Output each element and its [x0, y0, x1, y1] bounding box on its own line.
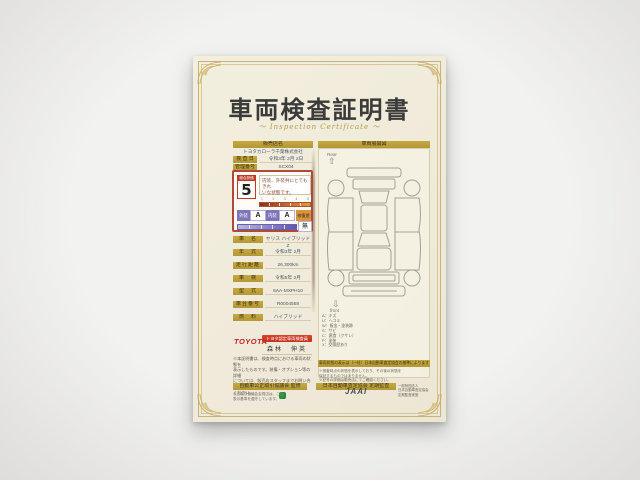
spec-row-fuel: 燃 料 ハイブリッド: [233, 314, 311, 321]
spec-row-mileage: 走行距離 26,300km: [233, 262, 311, 269]
corner-flourish-icon: [417, 59, 443, 85]
legend-line: X：交換歴あり: [322, 343, 422, 348]
mileage-value: 26,300km: [265, 262, 311, 269]
model-code-label: 型 式: [233, 288, 263, 295]
spec-row-shaken: 車 検 令和5年 2月: [233, 275, 311, 282]
disclaimer-line: 表示したものです。装備・オプション等の詳細: [233, 367, 313, 378]
shaken-label: 車 検: [233, 275, 263, 282]
chassis-number-value: R0004558: [265, 301, 311, 308]
fair-trade-council-bar: 自動車公正取引協議会 監修: [233, 383, 307, 390]
fuel-label: 燃 料: [233, 314, 263, 321]
overall-rating-box: 総合評価 5 内装、外装共にとてもきれ いな状態です。 1 2 3 4 5 外装…: [232, 170, 313, 232]
chassis-number-label: 車台番号: [233, 301, 263, 308]
inspector-name: 森林 伸英: [262, 344, 312, 355]
shaken-value: 令和5年 2月: [265, 275, 311, 282]
repair-history-label: 修復歴: [296, 210, 311, 221]
fair-trade-note: 公正取引協議会会員店は、この 表示基準を遵守しています。: [233, 392, 307, 401]
model-year-label: 年 式: [233, 249, 263, 256]
certificate-document: 車両検査証明書 〜 Inspection Certificate 〜 販売店名 …: [193, 56, 446, 422]
fair-trade-note-line: 表示基準を遵守しています。: [233, 397, 307, 402]
grade-scale-bar: [237, 224, 297, 230]
interior-grade: A: [279, 210, 295, 221]
car-name-value: ヤリス ハイブリッドZ: [265, 236, 311, 243]
overall-score-box: 総合評価 5: [237, 175, 256, 199]
spec-row-model-year: 年 式 令和3年 2月: [233, 249, 311, 256]
inspection-date-value: 令和3年 2月 2日: [259, 156, 313, 163]
jaai-note-line: 定期監査実施: [398, 393, 434, 397]
spec-row-car-name: 車 名 ヤリス ハイブリッドZ: [233, 236, 311, 243]
certified-inspector-bar: トヨタ認定車両検査員: [262, 335, 312, 342]
corner-flourish-icon: [196, 59, 222, 85]
rating-comment-box: 内装、外装共にとてもきれ いな状態です。: [259, 175, 311, 195]
rating-comment-line2: いな状態です。: [262, 190, 308, 196]
spec-row-chassis-number: 車台番号 R0004558: [233, 301, 311, 308]
certificate-subtitle-en: 〜 Inspection Certificate 〜: [193, 122, 446, 132]
model-year-value: 令和3年 2月: [265, 249, 311, 256]
photo-background: 車両検査証明書 〜 Inspection Certificate 〜 販売店名 …: [0, 0, 640, 480]
scale-tick: 2: [273, 197, 275, 201]
rating-comment-line1: 内装、外装共にとてもきれ: [262, 178, 308, 190]
diagram-legend: A：キズ U：ヘコミ W：板金・塗装跡 S：サビ C：腐食（クサレ） P：塗装 …: [322, 314, 422, 348]
meta-row-inspection-date: 検 査 日 令和3年 2月 2日: [233, 156, 313, 163]
grade-row: 外装 A 内装 A 修復歴: [237, 210, 312, 221]
rear-arrow-icon: ⇧: [328, 157, 336, 166]
diagram-header-bar: 車両展開図: [318, 141, 430, 148]
scale-tick: 3: [284, 197, 286, 201]
mileage-label: 走行距離: [233, 262, 263, 269]
model-code-value: 6AA-MXPH10: [265, 288, 311, 295]
exterior-label: 外装: [237, 210, 250, 221]
grade-scale-bar-wrap: [237, 224, 297, 230]
repair-history-value: 無: [298, 221, 312, 232]
exterior-grade: A: [250, 210, 266, 221]
scale-tick: 4: [296, 197, 298, 201]
standards-note-bar: 車両状態の表示は（一社）日本自動車査定協会の基準によります: [318, 360, 430, 367]
inspection-date-label: 検 査 日: [233, 156, 257, 163]
interior-label: 内装: [266, 210, 279, 221]
disclaimer-line: ※本証明書は、検査時点における車両の状態を: [233, 356, 313, 367]
scale-tick: 5: [307, 197, 309, 201]
rating-scale-bar: [259, 202, 311, 207]
vehicle-unfolded-diagram: [323, 166, 425, 300]
corner-flourish-icon: [196, 393, 222, 419]
jaai-logo: JAAI: [345, 387, 367, 396]
fair-trade-mark-icon: [279, 392, 286, 399]
dealer-name: トヨタカローラ千葉株式会社: [233, 149, 313, 155]
fuel-value: ハイブリッド: [265, 314, 311, 321]
spec-row-model-code: 型 式 6AA-MXPH10: [233, 288, 311, 295]
jaai-note: 一般財団法人 日本自動車査定協会 定期監査実施: [398, 384, 434, 397]
dealer-header-bar: 販売店名: [233, 141, 313, 148]
rating-scale-ticks: 1 2 3 4 5: [259, 197, 311, 201]
diagram-fineprint: ※検査時点の状態を表示しており、その後の状態を 保証するものではありません。 ※…: [319, 369, 429, 383]
certificate-title: 車両検査証明書: [193, 90, 446, 125]
car-name-label: 車 名: [233, 236, 263, 243]
scale-tick: 1: [261, 197, 263, 201]
overall-rating-score: 5: [238, 181, 255, 199]
